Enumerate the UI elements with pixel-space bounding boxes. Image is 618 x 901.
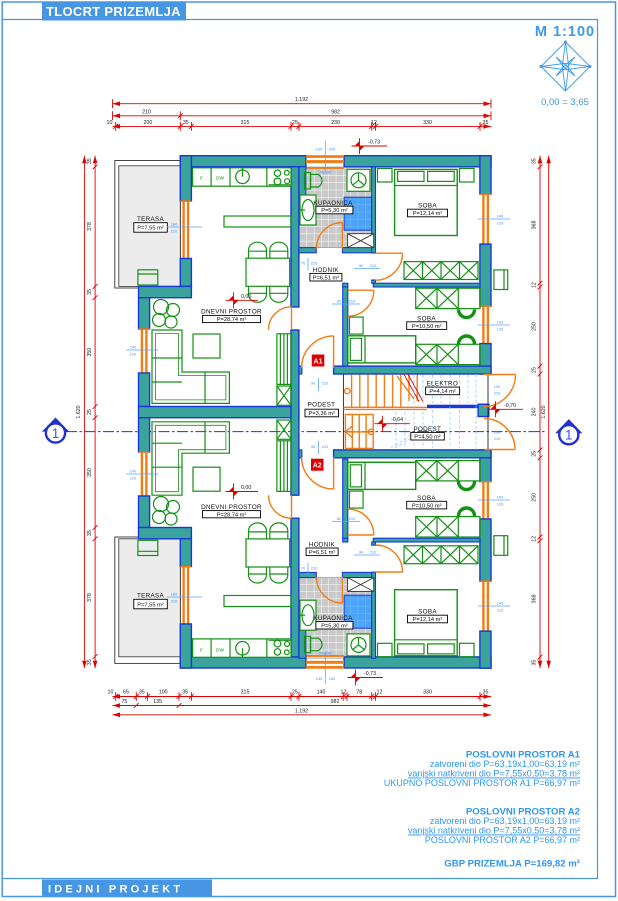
- svg-text:P=4,14 m²: P=4,14 m²: [429, 389, 456, 395]
- svg-text:12: 12: [377, 690, 383, 696]
- svg-text:SOBA: SOBA: [418, 609, 437, 616]
- svg-text:35: 35: [182, 690, 188, 696]
- svg-text:TERASA: TERASA: [137, 593, 164, 600]
- svg-text:82: 82: [337, 516, 341, 521]
- svg-text:35: 35: [483, 690, 489, 696]
- svg-text:140: 140: [497, 601, 504, 606]
- svg-text:P=12,14 m²: P=12,14 m²: [413, 617, 443, 623]
- svg-text:240: 240: [329, 676, 336, 681]
- svg-text:10: 10: [108, 690, 114, 696]
- svg-text:P=10,50 m²: P=10,50 m²: [412, 324, 442, 330]
- svg-text:250: 250: [532, 322, 538, 331]
- svg-text:120: 120: [130, 352, 137, 357]
- svg-text:210: 210: [322, 381, 329, 386]
- svg-text:315: 315: [241, 120, 250, 126]
- svg-text:100: 100: [497, 320, 504, 325]
- svg-text:-0,70: -0,70: [504, 403, 516, 409]
- svg-text:330: 330: [423, 690, 432, 696]
- svg-text:F: F: [200, 648, 203, 654]
- svg-text:210: 210: [322, 444, 329, 449]
- svg-text:SOBA: SOBA: [417, 495, 436, 502]
- svg-text:DW: DW: [216, 648, 224, 654]
- svg-text:25: 25: [532, 451, 538, 457]
- svg-text:GBP PRIZEMLJA P=169,82 m²: GBP PRIZEMLJA P=169,82 m²: [444, 859, 580, 870]
- svg-text:982: 982: [331, 109, 340, 115]
- svg-text:100: 100: [497, 495, 504, 500]
- svg-text:210: 210: [311, 566, 318, 571]
- svg-text:PODEST: PODEST: [413, 426, 441, 433]
- svg-text:TLOCRT PRIZEMLJA: TLOCRT PRIZEMLJA: [46, 4, 181, 19]
- svg-text:230: 230: [331, 120, 340, 126]
- svg-text:25: 25: [292, 120, 298, 126]
- svg-text:982: 982: [331, 699, 340, 705]
- svg-text:210: 210: [494, 436, 501, 441]
- svg-text:90x140: 90x140: [319, 651, 333, 656]
- svg-text:zatvoreni dio P=63,19x1,00=63,: zatvoreni dio P=63,19x1,00=63,19 m²: [430, 816, 580, 826]
- svg-text:12: 12: [341, 690, 347, 696]
- svg-text:TERASA: TERASA: [137, 216, 164, 223]
- svg-text:DW: DW: [216, 176, 224, 182]
- svg-text:-0,64: -0,64: [391, 417, 403, 423]
- svg-text:UKUPNO POSLOVNI PROSTOR A1 P=6: UKUPNO POSLOVNI PROSTOR A1 P=66,97 m²: [384, 778, 580, 788]
- svg-text:DNEVNI PROSTOR: DNEVNI PROSTOR: [201, 309, 262, 316]
- svg-text:210: 210: [349, 516, 356, 521]
- svg-text:zatvoreni dio P=63,19x1,00=63,: zatvoreni dio P=63,19x1,00=63,19 m²: [430, 759, 580, 769]
- svg-text:0,00 = 3,65: 0,00 = 3,65: [541, 97, 589, 108]
- svg-text:90x140: 90x140: [319, 170, 333, 175]
- svg-text:P=10,50 m²: P=10,50 m²: [412, 503, 442, 509]
- svg-text:P=5,30 m²: P=5,30 m²: [321, 623, 348, 629]
- svg-text:200: 200: [143, 120, 152, 126]
- svg-text:135: 135: [316, 147, 323, 152]
- svg-text:1.192: 1.192: [295, 708, 308, 714]
- svg-text:120: 120: [497, 608, 504, 613]
- svg-text:35: 35: [87, 289, 93, 295]
- svg-text:78: 78: [356, 690, 362, 696]
- svg-text:35: 35: [532, 158, 538, 164]
- svg-text:25: 25: [87, 409, 93, 415]
- svg-text:75: 75: [121, 699, 127, 705]
- svg-text:120: 120: [497, 327, 504, 332]
- svg-text:210: 210: [349, 299, 356, 304]
- svg-text:35: 35: [183, 120, 189, 126]
- svg-text:120: 120: [497, 502, 504, 507]
- svg-text:180: 180: [171, 222, 178, 227]
- svg-text:vanjski natkriveni dio P=7,55x: vanjski natkriveni dio P=7,55x0,50=3,78 …: [408, 769, 580, 779]
- svg-text:140: 140: [130, 469, 137, 474]
- svg-text:P=7,55 m²: P=7,55 m²: [137, 226, 164, 232]
- svg-text:10: 10: [107, 120, 113, 126]
- svg-text:-0,73: -0,73: [368, 140, 380, 146]
- svg-text:135: 135: [316, 676, 323, 681]
- svg-text:210: 210: [142, 109, 151, 115]
- svg-text:POSLOVNI PROSTOR A2 P=66,97 m²: POSLOVNI PROSTOR A2 P=66,97 m²: [425, 835, 580, 845]
- svg-text:P=3,36 m²: P=3,36 m²: [308, 411, 335, 417]
- svg-text:100: 100: [159, 690, 168, 696]
- svg-text:210: 210: [370, 263, 377, 268]
- svg-text:35: 35: [532, 660, 538, 666]
- svg-text:240: 240: [329, 147, 336, 152]
- svg-text:210: 210: [494, 391, 501, 396]
- svg-text:0,00: 0,00: [241, 294, 251, 300]
- svg-text:1.192: 1.192: [295, 97, 308, 103]
- svg-text:368: 368: [532, 594, 538, 603]
- svg-text:378: 378: [87, 222, 93, 231]
- svg-text:P=6,51 m²: P=6,51 m²: [309, 550, 336, 556]
- svg-text:100: 100: [494, 430, 501, 435]
- svg-text:HODNIK: HODNIK: [309, 542, 336, 549]
- svg-text:IDEJNI PROJEKT: IDEJNI PROJEKT: [48, 884, 183, 896]
- svg-text:35: 35: [139, 690, 145, 696]
- svg-text:25: 25: [292, 690, 298, 696]
- svg-text:P=7,55 m²: P=7,55 m²: [137, 602, 164, 608]
- svg-text:120: 120: [497, 221, 504, 226]
- svg-text:PODEST: PODEST: [308, 402, 336, 409]
- svg-text:SOBA: SOBA: [418, 203, 437, 210]
- svg-text:180: 180: [171, 592, 178, 597]
- svg-text:ELEKTRO: ELEKTRO: [427, 380, 459, 387]
- svg-text:M 1:100: M 1:100: [535, 24, 595, 40]
- svg-text:P=12,14 m²: P=12,14 m²: [413, 211, 443, 217]
- svg-text:350: 350: [87, 468, 93, 477]
- svg-text:DNEVNI PROSTOR: DNEVNI PROSTOR: [201, 504, 262, 511]
- svg-text:135: 135: [153, 699, 162, 705]
- svg-text:65: 65: [123, 690, 129, 696]
- svg-text:F: F: [200, 176, 203, 182]
- svg-text:368: 368: [532, 221, 538, 230]
- svg-text:330: 330: [423, 120, 432, 126]
- svg-text:12: 12: [532, 536, 538, 542]
- svg-text:vanjski natkriveni dio P=7,55x: vanjski natkriveni dio P=7,55x0,50=3,78 …: [408, 826, 580, 836]
- svg-text:1: 1: [52, 426, 60, 441]
- svg-text:12: 12: [371, 120, 377, 126]
- svg-text:210: 210: [311, 261, 318, 266]
- svg-text:P=6,51 m²: P=6,51 m²: [313, 275, 340, 281]
- svg-text:240: 240: [532, 408, 538, 417]
- svg-text:1.620: 1.620: [541, 405, 547, 418]
- svg-text:120: 120: [130, 476, 137, 481]
- svg-text:-0,73: -0,73: [364, 671, 376, 677]
- svg-text:210: 210: [171, 599, 178, 604]
- svg-text:210: 210: [370, 550, 377, 555]
- svg-text:35: 35: [87, 659, 93, 665]
- svg-text:SOBA: SOBA: [417, 315, 436, 322]
- svg-text:25: 25: [532, 367, 538, 373]
- svg-text:35: 35: [87, 530, 93, 536]
- svg-text:35: 35: [483, 120, 489, 126]
- svg-text:35: 35: [87, 158, 93, 164]
- svg-text:A2: A2: [313, 463, 322, 470]
- svg-text:12: 12: [532, 282, 538, 288]
- svg-text:P=4,50 m²: P=4,50 m²: [414, 434, 441, 440]
- svg-text:82: 82: [337, 299, 341, 304]
- svg-text:315: 315: [241, 690, 250, 696]
- svg-text:140: 140: [497, 214, 504, 219]
- svg-text:A1: A1: [314, 359, 323, 366]
- svg-text:1.620: 1.620: [76, 405, 82, 418]
- svg-text:0,00: 0,00: [241, 485, 251, 491]
- svg-text:378: 378: [87, 593, 93, 602]
- svg-text:350: 350: [87, 348, 93, 357]
- svg-text:100: 100: [494, 384, 501, 389]
- svg-text:P=28,74 m²: P=28,74 m²: [217, 317, 247, 323]
- svg-text:140: 140: [130, 345, 137, 350]
- svg-text:1: 1: [565, 428, 573, 443]
- svg-text:P=28,74 m²: P=28,74 m²: [217, 512, 247, 518]
- svg-text:210: 210: [171, 229, 178, 234]
- svg-text:P=5,30 m²: P=5,30 m²: [321, 208, 348, 214]
- svg-text:250: 250: [532, 493, 538, 502]
- svg-text:140: 140: [317, 690, 326, 696]
